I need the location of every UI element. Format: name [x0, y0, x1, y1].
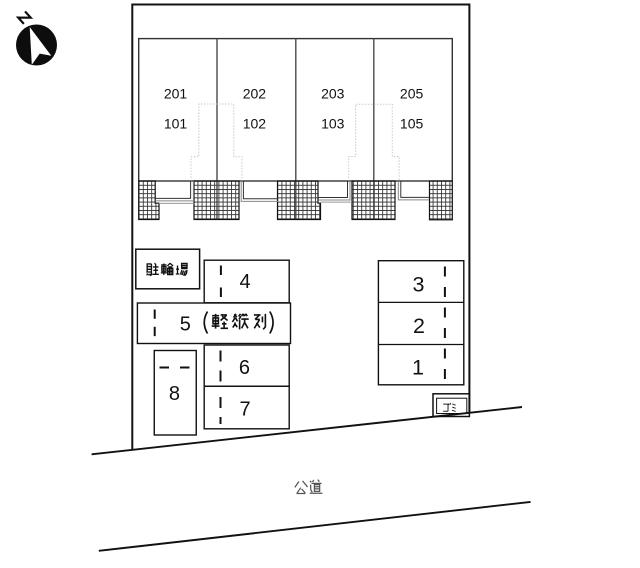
svg-text:3: 3 [413, 273, 425, 297]
svg-text:203: 203 [321, 86, 345, 102]
svg-text:2: 2 [413, 314, 425, 338]
svg-text:7: 7 [239, 399, 250, 421]
svg-text:202: 202 [243, 86, 267, 102]
svg-text:8: 8 [169, 383, 180, 405]
svg-text:6: 6 [239, 357, 250, 379]
svg-text:102: 102 [243, 116, 267, 132]
svg-text:1: 1 [412, 356, 424, 380]
svg-text:4: 4 [239, 271, 250, 293]
svg-text:5: 5 [180, 314, 191, 336]
svg-text:105: 105 [400, 116, 424, 132]
svg-text:205: 205 [400, 86, 424, 102]
svg-text:201: 201 [164, 86, 188, 102]
svg-text:101: 101 [164, 116, 188, 132]
svg-text:103: 103 [321, 116, 345, 132]
